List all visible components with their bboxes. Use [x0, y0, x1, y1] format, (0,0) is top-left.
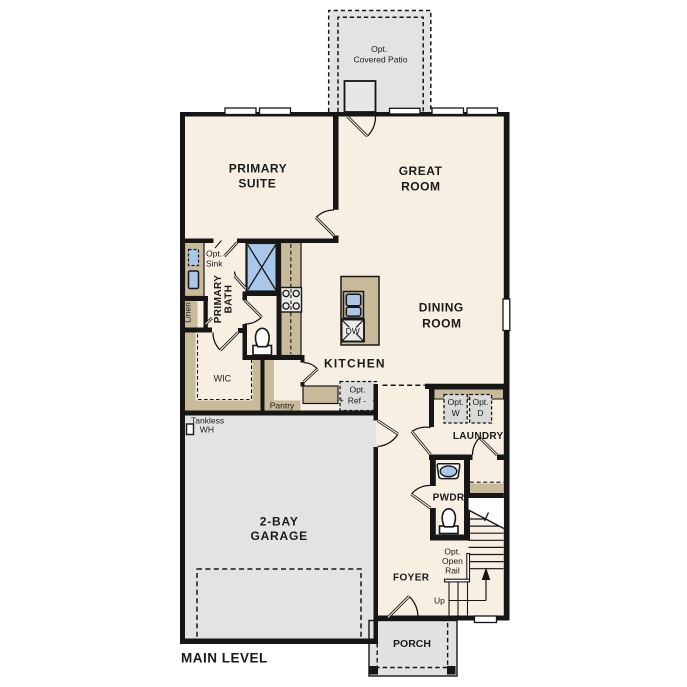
svg-text:Up: Up [434, 596, 445, 606]
svg-text:SUITE: SUITE [238, 177, 276, 191]
svg-text:KITCHEN: KITCHEN [324, 357, 386, 371]
svg-text:MAIN LEVEL: MAIN LEVEL [181, 651, 268, 666]
svg-text:WH: WH [200, 424, 214, 434]
svg-text:Opt.: Opt. [371, 44, 387, 54]
svg-text:DINING: DINING [419, 301, 464, 315]
svg-text:GARAGE: GARAGE [250, 529, 307, 543]
svg-text:PRIMARY: PRIMARY [229, 161, 287, 175]
svg-text:PORCH: PORCH [393, 638, 431, 650]
svg-text:WIC: WIC [214, 374, 232, 384]
svg-text:Covered Patio: Covered Patio [354, 55, 408, 65]
svg-text:ROOM: ROOM [422, 317, 461, 331]
svg-text:2-BAY: 2-BAY [260, 514, 299, 528]
svg-text:BATH: BATH [224, 285, 235, 314]
svg-text:Opt.: Opt. [444, 547, 460, 557]
svg-text:W: W [452, 408, 460, 418]
svg-text:Opt.: Opt. [472, 397, 488, 407]
svg-text:FOYER: FOYER [393, 572, 430, 583]
svg-text:Opt.: Opt. [349, 384, 365, 394]
svg-text:LAUNDRY: LAUNDRY [453, 431, 504, 442]
svg-text:D: D [477, 408, 483, 418]
svg-text:+: + [339, 396, 344, 405]
svg-text:Rail: Rail [445, 566, 460, 576]
svg-text:Pantry: Pantry [270, 401, 295, 411]
svg-text:Sink: Sink [206, 259, 223, 269]
svg-text:Open: Open [442, 556, 463, 566]
svg-text:GREAT: GREAT [399, 164, 443, 178]
svg-text:DW: DW [346, 326, 360, 336]
svg-text:PRIMARY: PRIMARY [213, 275, 224, 324]
svg-text:Ref -: Ref - [348, 395, 367, 405]
svg-text:Opt.: Opt. [206, 249, 222, 259]
svg-text:PWDR: PWDR [433, 492, 465, 503]
svg-text:Opt.: Opt. [448, 397, 464, 407]
svg-text:Linen: Linen [182, 302, 192, 323]
svg-text:ROOM: ROOM [401, 179, 440, 193]
